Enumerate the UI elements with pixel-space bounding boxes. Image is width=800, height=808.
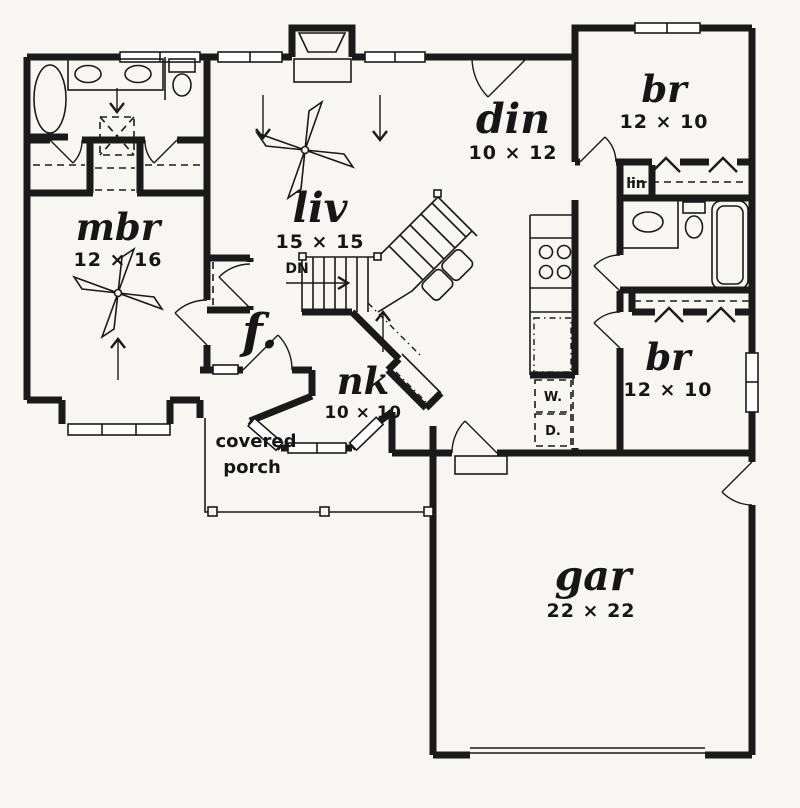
room-dims-din: 10 × 12 [468,142,557,164]
sink-icon [75,66,101,83]
room-label-mbr: mbr [76,205,163,249]
newel-post [299,253,306,260]
fireplace-icon [294,33,351,82]
room-dims-mbr: 12 × 16 [73,249,162,271]
closet-door-arc [145,140,177,163]
window [213,365,238,374]
shower-icon [100,117,134,155]
vanity-sinks [68,59,163,90]
window [218,52,282,62]
dn-label: DN [285,261,308,277]
vanity [622,200,678,248]
garage-door [470,748,705,753]
room-label-liv: liv [293,184,349,232]
closet-rods [33,165,202,190]
toilet-icon [165,57,195,100]
ceiling-arrow-down [256,95,270,138]
ceiling-arrow-down [110,88,124,112]
window [635,23,700,33]
door-arc [472,57,528,97]
closet-door-arc [50,140,82,163]
room-dims-br2: 12 × 10 [623,379,712,401]
porch-post [208,507,217,516]
toilet-icon [683,202,705,238]
door-arc [175,300,207,345]
sink-icon [125,66,151,83]
floor-plan-page: W. D. [0,0,800,808]
window [288,443,346,453]
washer-label: W. [544,390,562,405]
door-arc [594,312,620,348]
newel-post [374,253,381,260]
door-arc [594,255,620,291]
room-dims-nk: 10 × 10 [325,403,402,423]
porch-post [320,507,329,516]
room-label-nk: nk [337,359,390,403]
window [746,353,758,412]
window [68,424,170,435]
door-arc [580,137,616,162]
door-arc [722,462,752,505]
linen-label: lin [626,176,646,192]
laundry-closet: W. D. [535,378,573,448]
room-dims-liv: 15 × 15 [275,231,364,253]
counter-band [530,215,575,375]
porch-label-line1: covered [216,431,297,452]
sink-icon [633,212,663,232]
newel-post [434,190,441,197]
refrigerator-icon [534,318,571,372]
window [365,52,425,62]
bathtub-icon [34,65,66,133]
room-label-br1: br [641,67,689,111]
dryer-label: D. [545,424,561,439]
door-arc [219,264,250,308]
stairs-dn-arrow [286,277,348,289]
porch-post [424,507,433,516]
ceiling-arrow-up [111,339,125,380]
room-label-gar: gar [555,552,635,600]
window [120,52,200,62]
floor-plan-drawing: W. D. [0,0,800,808]
room-label-br2: br [645,335,693,379]
garage-step [455,456,507,474]
room-dims-gar: 22 × 22 [546,600,635,622]
master-bath [33,57,202,190]
door-arc [452,421,497,453]
cooktop-icon [540,246,571,279]
bathtub-icon [712,201,748,289]
room-dims-br1: 12 × 10 [619,111,708,133]
ceiling-arrow-down [373,95,387,140]
porch-label-line2: porch [223,457,281,478]
room-label-foyer: f. [239,304,278,360]
room-label-din: din [476,95,550,143]
